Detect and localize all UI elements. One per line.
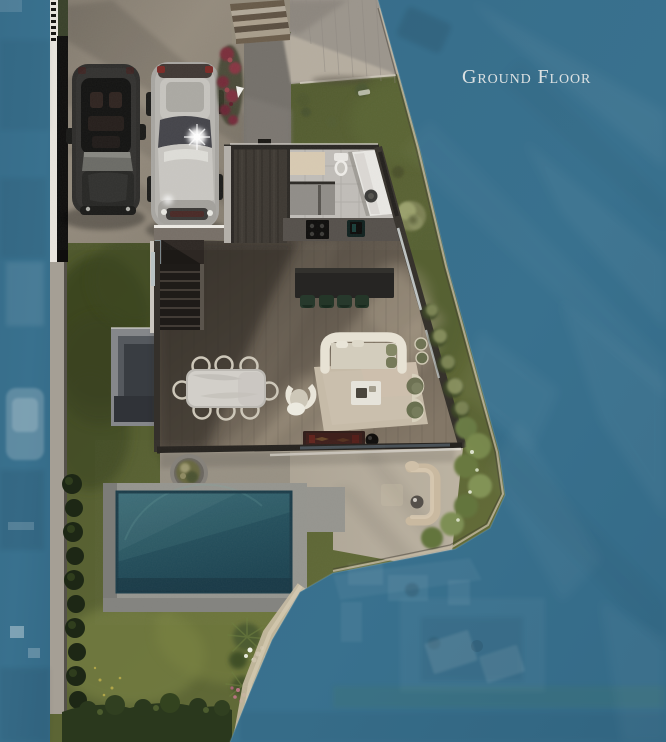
svg-text:Ground Floor: Ground Floor [462, 66, 591, 88]
